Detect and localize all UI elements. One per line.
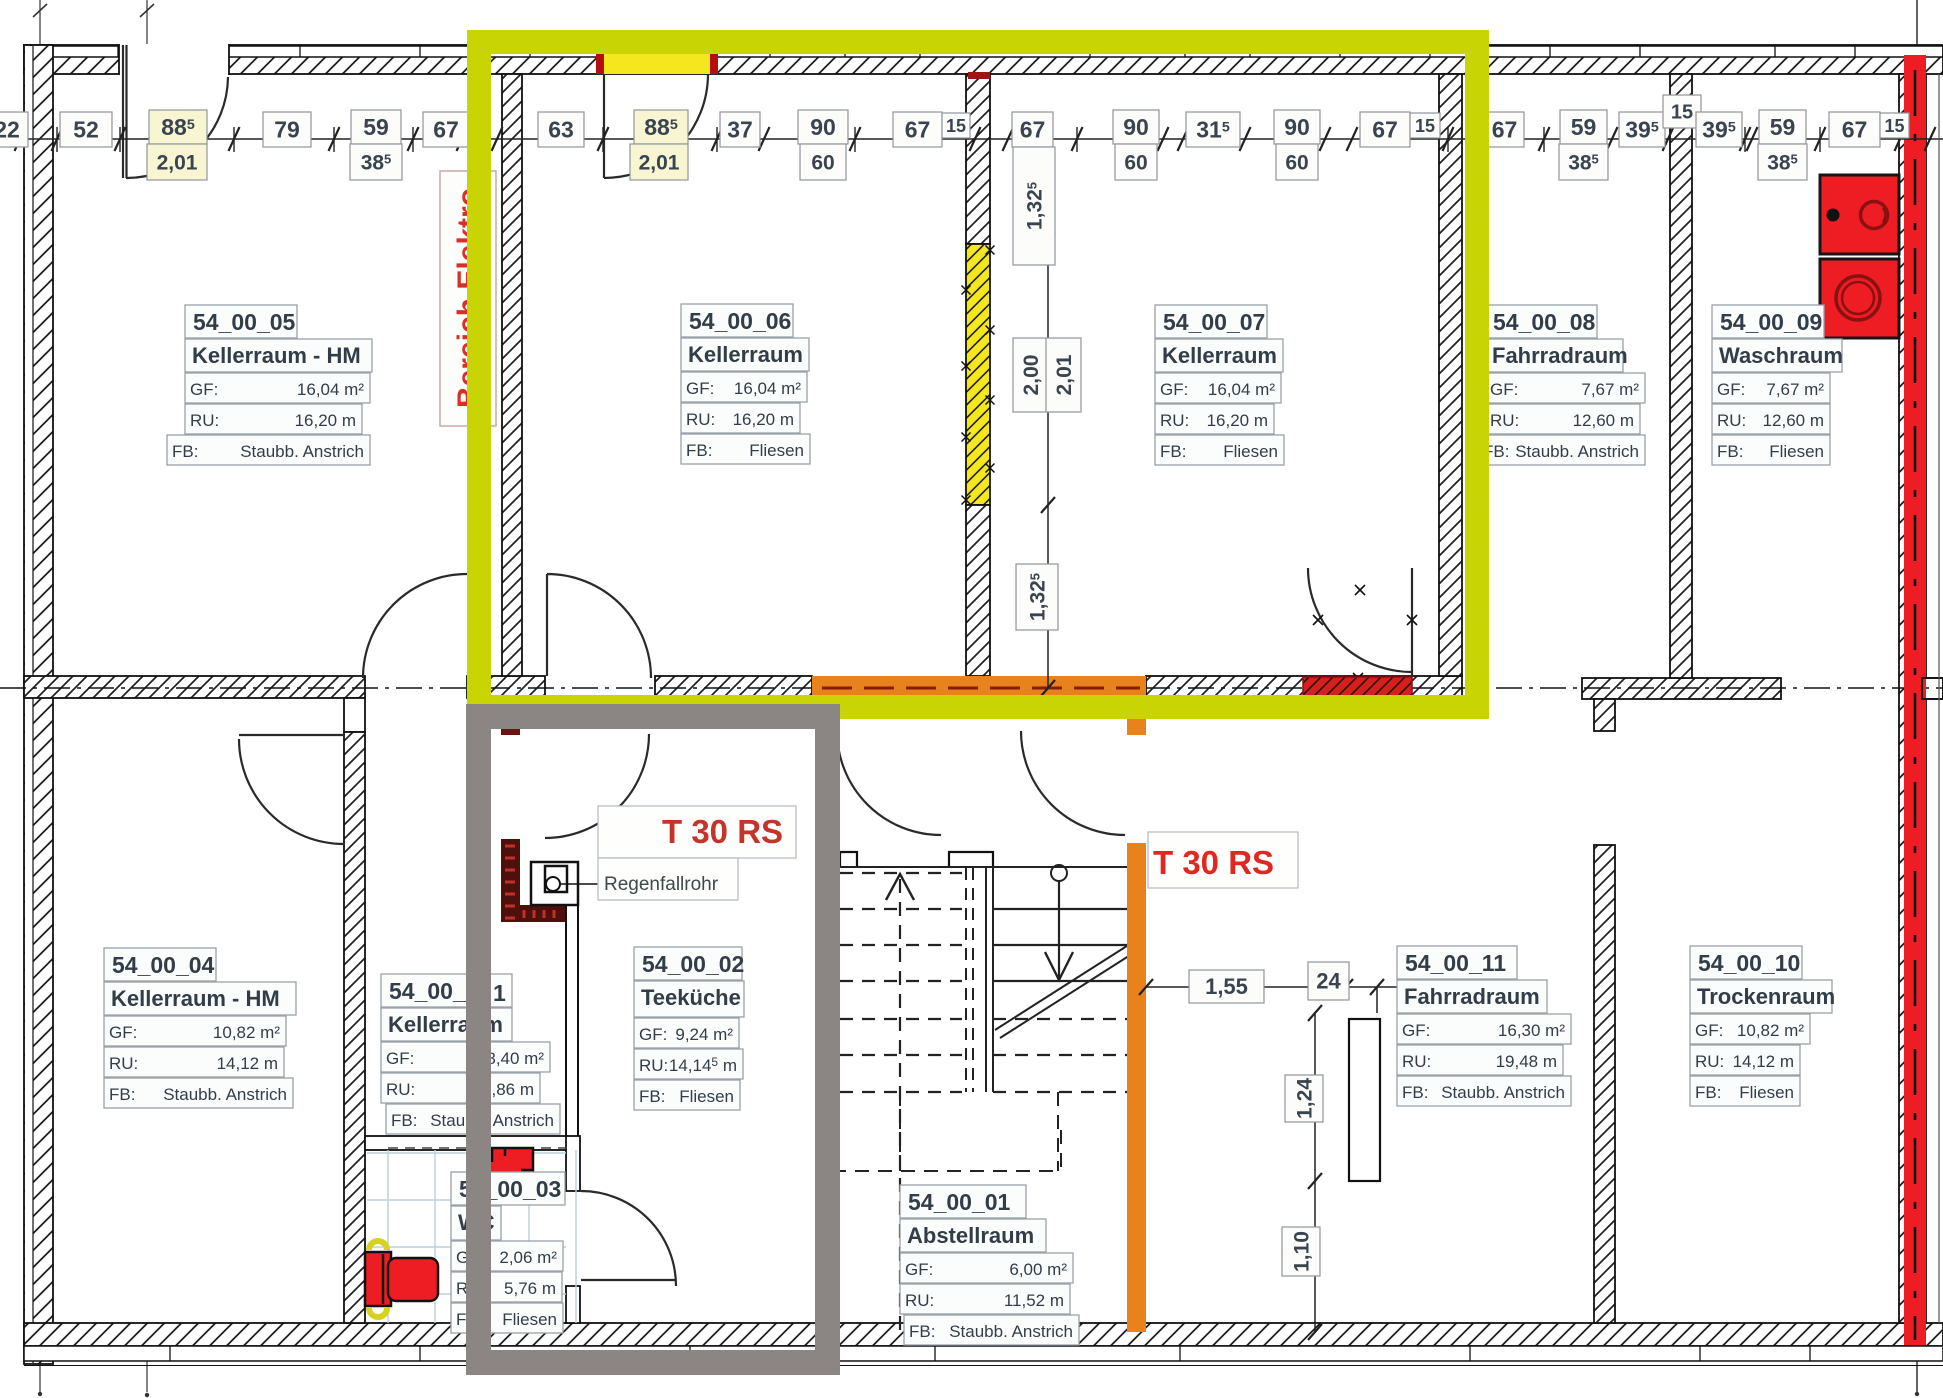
svg-text:10,82 m²: 10,82 m²: [1737, 1021, 1804, 1040]
svg-text:Staubb. Anstrich: Staubb. Anstrich: [240, 442, 364, 461]
svg-text:Staubb. Anstrich: Staubb. Anstrich: [430, 1111, 554, 1130]
svg-text:54_00_01: 54_00_01: [908, 1189, 1011, 1215]
svg-text:Teeküche: Teeküche: [641, 985, 741, 1010]
svg-text:1,10: 1,10: [1290, 1231, 1313, 1272]
svg-text:Staubb. Anstrich: Staubb. Anstrich: [949, 1322, 1073, 1341]
svg-text:GF:: GF:: [1717, 380, 1745, 399]
svg-text:FB:: FB:: [172, 442, 198, 461]
svg-text:59: 59: [363, 114, 389, 140]
svg-text:Fliesen: Fliesen: [679, 1087, 734, 1106]
svg-text:Kellerraum - HM: Kellerraum - HM: [111, 986, 280, 1011]
svg-text:Kellerraum - HM: Kellerraum - HM: [192, 343, 361, 368]
svg-text:54_00_10: 54_00_10: [1698, 950, 1800, 976]
svg-text:2,01: 2,01: [1053, 354, 1076, 395]
svg-text:Fliesen: Fliesen: [502, 1310, 557, 1329]
svg-text:16,20 m: 16,20 m: [1207, 411, 1268, 430]
svg-text:14,12 m: 14,12 m: [1733, 1052, 1794, 1071]
svg-text:9,24 m²: 9,24 m²: [675, 1025, 733, 1044]
svg-text:T 30 RS: T 30 RS: [662, 813, 783, 850]
svg-text:RU:: RU:: [1695, 1052, 1724, 1071]
svg-text:Waschraum: Waschraum: [1719, 343, 1843, 368]
svg-text:GF:: GF:: [905, 1260, 933, 1279]
svg-text:11,52 m: 11,52 m: [1004, 1291, 1064, 1310]
svg-text:RU:: RU:: [190, 411, 219, 430]
svg-text:90: 90: [810, 114, 836, 140]
svg-text:15: 15: [1415, 116, 1435, 136]
svg-text:5,76 m: 5,76 m: [504, 1279, 556, 1298]
svg-text:Kellerraum: Kellerraum: [1162, 343, 1277, 368]
svg-text:54_00_09: 54_00_09: [1720, 309, 1822, 335]
svg-text:GF:: GF:: [1160, 380, 1188, 399]
svg-text:RU:: RU:: [1717, 411, 1746, 430]
svg-text:GF:: GF:: [109, 1023, 137, 1042]
svg-text:Fahrradraum: Fahrradraum: [1492, 343, 1628, 368]
svg-text:1: 1: [493, 980, 506, 1006]
svg-text:67: 67: [1492, 117, 1518, 143]
svg-text:16,04 m²: 16,04 m²: [297, 380, 364, 399]
svg-text:16,30 m²: 16,30 m²: [1498, 1021, 1565, 1040]
svg-text:16,20 m: 16,20 m: [733, 410, 794, 429]
svg-text:GF:: GF:: [639, 1025, 667, 1044]
svg-text:FB:: FB:: [1402, 1083, 1428, 1102]
svg-text:16,04 m²: 16,04 m²: [734, 379, 801, 398]
svg-text:GF:: GF:: [1490, 380, 1518, 399]
svg-text:60: 60: [1285, 151, 1308, 174]
svg-text:Fliesen: Fliesen: [1769, 442, 1824, 461]
svg-text:52: 52: [73, 117, 99, 143]
svg-text:Fliesen: Fliesen: [749, 441, 804, 460]
svg-text:54_00_04: 54_00_04: [112, 952, 215, 978]
svg-text:FB:: FB:: [909, 1322, 935, 1341]
svg-text:22: 22: [0, 117, 20, 143]
svg-text:67: 67: [433, 117, 459, 143]
svg-text:Trockenraum: Trockenraum: [1697, 984, 1835, 1009]
svg-text:60: 60: [1124, 151, 1147, 174]
svg-text:RU:: RU:: [1402, 1052, 1431, 1071]
svg-text:79: 79: [274, 117, 300, 143]
svg-text:Staubb. Anstrich: Staubb. Anstrich: [163, 1085, 287, 1104]
svg-text:GF:: GF:: [686, 379, 714, 398]
svg-text:1,55: 1,55: [1205, 974, 1248, 999]
svg-text:54_00_07: 54_00_07: [1163, 309, 1265, 335]
svg-text:15: 15: [946, 116, 966, 136]
svg-text:Fahrradraum: Fahrradraum: [1404, 984, 1540, 1009]
svg-text:12,60 m: 12,60 m: [1573, 411, 1634, 430]
svg-text:FB:: FB:: [686, 441, 712, 460]
svg-text:16,20 m: 16,20 m: [295, 411, 356, 430]
svg-text:Kellerraum: Kellerraum: [688, 342, 803, 367]
svg-text:Fliesen: Fliesen: [1739, 1083, 1794, 1102]
svg-text:Staubb. Anstrich: Staubb. Anstrich: [1515, 442, 1639, 461]
svg-text:Regenfallrohr: Regenfallrohr: [604, 874, 719, 895]
svg-text:54_00_06: 54_00_06: [689, 308, 791, 334]
svg-text:37: 37: [727, 117, 753, 143]
svg-text:14,12 m: 14,12 m: [217, 1054, 278, 1073]
svg-text:16,04 m²: 16,04 m²: [1208, 380, 1275, 399]
svg-text:10,82 m²: 10,82 m²: [213, 1023, 280, 1042]
svg-text:RU:: RU:: [386, 1080, 415, 1099]
svg-text:FB:: FB:: [639, 1087, 665, 1106]
svg-text:67: 67: [905, 117, 931, 143]
svg-text:19,48 m: 19,48 m: [1496, 1052, 1557, 1071]
svg-text:15: 15: [1671, 102, 1693, 124]
svg-text:59: 59: [1770, 114, 1796, 140]
svg-text:FB:: FB:: [1717, 442, 1743, 461]
svg-text:GF:: GF:: [190, 380, 218, 399]
svg-text:RU:: RU:: [639, 1056, 668, 1075]
svg-text:67: 67: [1372, 117, 1398, 143]
svg-text:Abstellraum: Abstellraum: [907, 1223, 1034, 1248]
svg-text:67: 67: [1842, 117, 1868, 143]
svg-text:54_00_08: 54_00_08: [1493, 309, 1596, 335]
svg-text:Staubb. Anstrich: Staubb. Anstrich: [1441, 1083, 1565, 1102]
svg-text:6,00 m²: 6,00 m²: [1009, 1260, 1067, 1279]
svg-text:GF:: GF:: [1695, 1021, 1723, 1040]
svg-text:63: 63: [548, 117, 574, 143]
svg-text:54_00_05: 54_00_05: [193, 309, 296, 335]
svg-text:GF:: GF:: [386, 1049, 414, 1068]
svg-text:FB:: FB:: [109, 1085, 135, 1104]
svg-text:90: 90: [1123, 114, 1149, 140]
svg-text:T 30 RS: T 30 RS: [1153, 844, 1274, 881]
svg-text:FB:: FB:: [1160, 442, 1186, 461]
svg-text:60: 60: [811, 151, 834, 174]
svg-text:7,67 m²: 7,67 m²: [1581, 380, 1639, 399]
svg-text:Fliesen: Fliesen: [1223, 442, 1278, 461]
svg-text:54_00_11: 54_00_11: [1405, 950, 1506, 976]
svg-text:7,67 m²: 7,67 m²: [1766, 380, 1824, 399]
svg-text:1,24: 1,24: [1293, 1078, 1316, 1119]
svg-text:67: 67: [1020, 117, 1046, 143]
svg-text:RU:: RU:: [1160, 411, 1189, 430]
svg-text:15: 15: [1884, 116, 1904, 136]
svg-text:12,60 m: 12,60 m: [1763, 411, 1824, 430]
svg-text:59: 59: [1571, 114, 1597, 140]
svg-text:RU:: RU:: [905, 1291, 934, 1310]
svg-text:90: 90: [1284, 114, 1310, 140]
svg-text:2,01: 2,01: [157, 151, 198, 174]
svg-text:2,00: 2,00: [1020, 355, 1043, 396]
svg-text:54_00_02: 54_00_02: [642, 951, 744, 977]
svg-text:24: 24: [1316, 969, 1341, 994]
svg-text:GF:: GF:: [1402, 1021, 1430, 1040]
svg-text:RU:: RU:: [109, 1054, 138, 1073]
svg-text:FB:: FB:: [1695, 1083, 1721, 1102]
svg-text:RU:: RU:: [1490, 411, 1519, 430]
svg-text:FB:: FB:: [391, 1111, 417, 1130]
svg-text:RU:: RU:: [686, 410, 715, 429]
svg-text:2,06 m²: 2,06 m²: [499, 1248, 557, 1267]
svg-text:2,01: 2,01: [639, 151, 680, 174]
svg-text:14,145 m: 14,145 m: [669, 1055, 737, 1075]
svg-text:8,40 m²: 8,40 m²: [486, 1049, 544, 1068]
